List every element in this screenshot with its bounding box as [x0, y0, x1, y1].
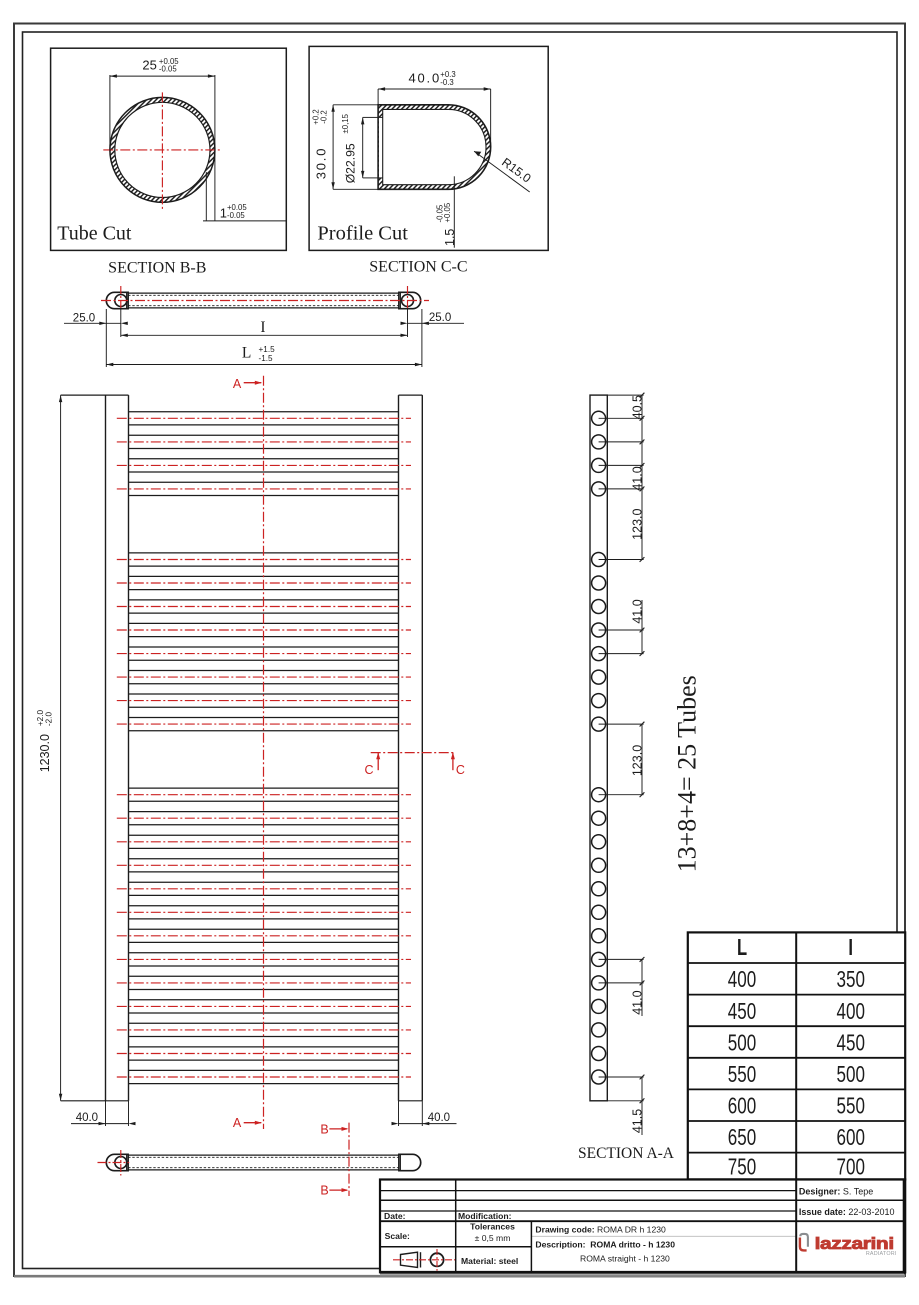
- svg-text:600: 600: [836, 1126, 864, 1151]
- svg-text:Date:: Date:: [384, 1211, 406, 1221]
- svg-text:41.0: 41.0: [631, 990, 645, 1014]
- svg-text:C: C: [364, 763, 373, 777]
- svg-text:-0.05: -0.05: [159, 65, 177, 74]
- svg-text:-0.3: -0.3: [440, 78, 453, 87]
- svg-text:±0,15: ±0,15: [341, 113, 350, 133]
- svg-text:-1.5: -1.5: [259, 354, 274, 363]
- svg-text:L: L: [737, 936, 747, 961]
- svg-text:B: B: [320, 1183, 328, 1197]
- svg-text:-0.05: -0.05: [436, 204, 445, 222]
- svg-text:40.0: 40.0: [76, 1112, 98, 1124]
- svg-text:450: 450: [836, 1031, 864, 1056]
- svg-text:650: 650: [728, 1126, 756, 1151]
- svg-text:13+8+4= 25 Tubes: 13+8+4= 25 Tubes: [673, 675, 702, 872]
- svg-text:350: 350: [836, 968, 864, 993]
- svg-text:A: A: [233, 377, 242, 391]
- svg-text:B: B: [320, 1122, 328, 1136]
- svg-text:-2.0: -2.0: [45, 712, 54, 727]
- svg-text:Scale:: Scale:: [385, 1231, 410, 1241]
- svg-text:SECTION C-C: SECTION C-C: [369, 258, 467, 275]
- svg-text:+1.5: +1.5: [259, 345, 276, 354]
- svg-text:40.0: 40.0: [428, 1112, 450, 1124]
- svg-text:RADIATORI: RADIATORI: [866, 1251, 897, 1257]
- svg-text:SECTION B-B: SECTION B-B: [108, 259, 206, 276]
- svg-text:500: 500: [836, 1063, 864, 1088]
- svg-text:750: 750: [728, 1155, 756, 1180]
- svg-text:400: 400: [836, 999, 864, 1024]
- svg-text:Modification:: Modification:: [458, 1211, 512, 1221]
- svg-text:700: 700: [836, 1155, 864, 1180]
- svg-text:550: 550: [836, 1094, 864, 1119]
- svg-text:550: 550: [728, 1063, 756, 1088]
- svg-text:SECTION A-A: SECTION A-A: [578, 1145, 675, 1162]
- svg-text:Ø22.95: Ø22.95: [344, 143, 358, 183]
- svg-text:C: C: [456, 763, 465, 777]
- svg-text:Tube Cut: Tube Cut: [57, 222, 132, 244]
- svg-text:1: 1: [220, 206, 227, 221]
- svg-text:41.0: 41.0: [631, 466, 645, 490]
- svg-text:600: 600: [728, 1094, 756, 1119]
- svg-text:Issue date: 22-03-2010: Issue date: 22-03-2010: [799, 1207, 895, 1217]
- svg-text:Description: ROMA dritto - h: Description: ROMA dritto - h 1230: [535, 1239, 675, 1249]
- svg-text:123.0: 123.0: [631, 745, 645, 776]
- svg-text:25.0: 25.0: [429, 312, 451, 324]
- svg-text:I: I: [848, 936, 853, 961]
- svg-text:30.0: 30.0: [314, 147, 329, 180]
- svg-text:L: L: [242, 345, 251, 362]
- svg-text:Drawing code: ROMA DR h 1230: Drawing code: ROMA DR h 1230: [535, 1225, 666, 1235]
- svg-text:Tolerances: Tolerances: [470, 1221, 515, 1231]
- svg-text:A: A: [233, 1116, 242, 1130]
- svg-text:40.5: 40.5: [631, 395, 645, 419]
- svg-text:41.0: 41.0: [631, 599, 645, 623]
- svg-text:-0.2: -0.2: [320, 110, 329, 123]
- svg-text:Designer: S. Tepe: Designer: S. Tepe: [799, 1186, 873, 1196]
- svg-text:40.0: 40.0: [409, 71, 442, 86]
- svg-text:I: I: [260, 319, 265, 336]
- svg-text:1.5: 1.5: [443, 229, 457, 246]
- svg-text:25.0: 25.0: [73, 312, 95, 324]
- svg-text:ROMA straight - h 1230: ROMA straight - h 1230: [580, 1253, 670, 1263]
- svg-text:123.0: 123.0: [631, 509, 645, 540]
- svg-text:450: 450: [728, 999, 756, 1024]
- svg-text:500: 500: [728, 1031, 756, 1056]
- svg-text:1230.0: 1230.0: [38, 734, 52, 772]
- svg-text:25: 25: [142, 57, 156, 72]
- svg-text:± 0,5 mm: ± 0,5 mm: [475, 1233, 511, 1243]
- svg-text:lazzarini: lazzarini: [815, 1234, 894, 1252]
- svg-text:Material: steel: Material: steel: [461, 1256, 518, 1266]
- svg-text:41.5: 41.5: [631, 1109, 645, 1133]
- svg-text:Profile Cut: Profile Cut: [317, 222, 408, 244]
- svg-text:-0.05: -0.05: [227, 211, 245, 220]
- svg-text:400: 400: [728, 968, 756, 993]
